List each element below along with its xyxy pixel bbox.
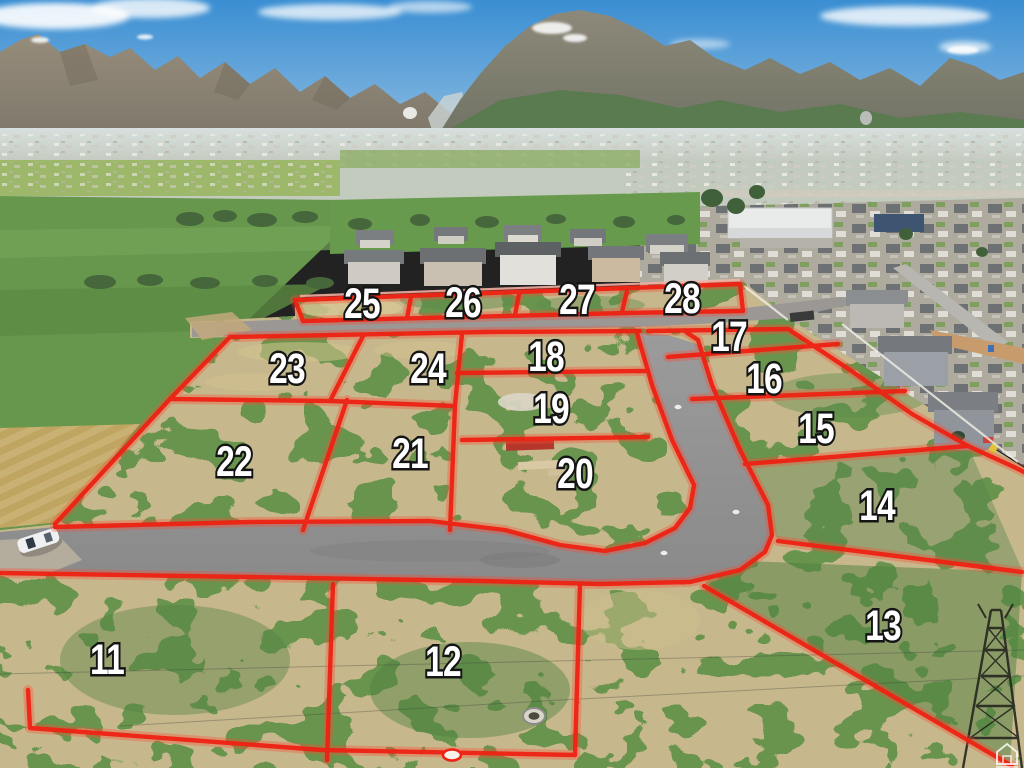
lot-label-25: 25 — [344, 280, 380, 328]
warehouse-navy — [874, 214, 924, 232]
lot-label-14: 14 — [859, 482, 896, 530]
lot-label-18: 18 — [528, 333, 564, 381]
lot-label-13: 13 — [865, 602, 901, 650]
lot-label-12: 12 — [425, 638, 461, 686]
lot-label-26: 26 — [445, 279, 481, 327]
water-tank — [860, 111, 872, 125]
lot-label-15: 15 — [798, 405, 834, 453]
aerial-photo: 111213141516171819202122232425262728 — [0, 0, 1024, 768]
utility-marker-circle — [443, 750, 461, 761]
lot-label-20: 20 — [557, 450, 593, 498]
lot-label-17: 17 — [711, 313, 747, 361]
lot-label-23: 23 — [269, 345, 305, 393]
lot-label-28: 28 — [664, 275, 700, 323]
porta-potty — [988, 345, 994, 352]
lot-label-27: 27 — [559, 276, 595, 324]
lot-label-19: 19 — [533, 385, 569, 433]
lot-label-21: 21 — [392, 430, 428, 478]
lot-label-24: 24 — [410, 345, 447, 393]
lot-label-16: 16 — [746, 355, 782, 403]
frontage-road — [700, 190, 1024, 197]
lot-label-22: 22 — [216, 438, 252, 486]
lot-label-11: 11 — [90, 636, 124, 684]
aerial-photo-canvas: 111213141516171819202122232425262728 — [0, 0, 1024, 768]
